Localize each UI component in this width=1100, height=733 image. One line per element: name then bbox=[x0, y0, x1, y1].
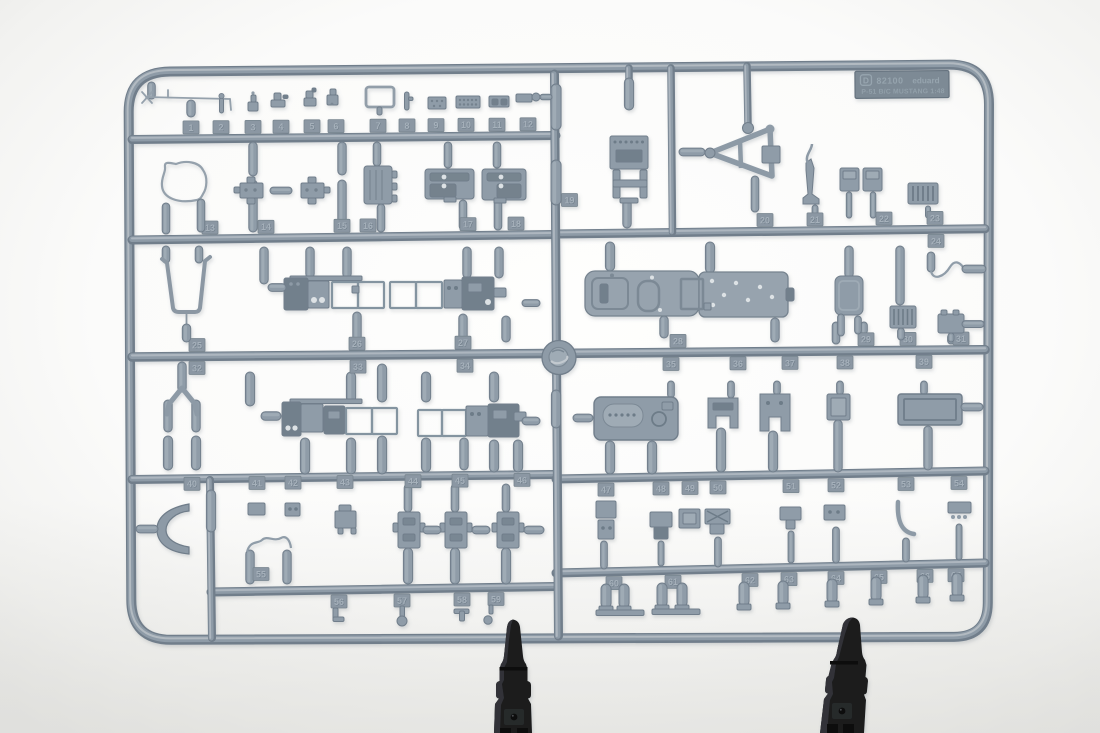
svg-text:13: 13 bbox=[205, 223, 215, 233]
svg-text:15: 15 bbox=[337, 221, 347, 231]
svg-text:39: 39 bbox=[919, 357, 929, 367]
svg-text:4: 4 bbox=[278, 122, 283, 132]
svg-text:48: 48 bbox=[656, 484, 666, 494]
svg-text:57: 57 bbox=[397, 596, 407, 606]
svg-text:31: 31 bbox=[956, 334, 966, 344]
svg-text:28: 28 bbox=[673, 336, 683, 346]
svg-text:14: 14 bbox=[261, 222, 271, 232]
svg-text:eduard: eduard bbox=[912, 76, 939, 85]
svg-text:18: 18 bbox=[511, 219, 521, 229]
svg-text:25: 25 bbox=[192, 340, 202, 350]
svg-text:12: 12 bbox=[523, 120, 533, 130]
svg-text:1: 1 bbox=[188, 123, 193, 133]
svg-text:19: 19 bbox=[564, 195, 574, 205]
svg-text:D: D bbox=[863, 75, 869, 85]
svg-text:82100: 82100 bbox=[876, 75, 903, 85]
svg-text:21: 21 bbox=[810, 215, 820, 225]
svg-text:50: 50 bbox=[713, 483, 723, 493]
svg-text:61: 61 bbox=[668, 577, 678, 587]
svg-text:42: 42 bbox=[288, 478, 298, 488]
svg-text:6: 6 bbox=[333, 122, 338, 132]
svg-text:27: 27 bbox=[458, 338, 468, 348]
svg-text:58: 58 bbox=[457, 595, 467, 605]
svg-text:46: 46 bbox=[517, 475, 527, 485]
svg-text:52: 52 bbox=[831, 481, 841, 491]
svg-text:35: 35 bbox=[666, 359, 676, 369]
svg-text:24: 24 bbox=[931, 236, 941, 246]
svg-text:29: 29 bbox=[861, 335, 871, 345]
svg-text:9: 9 bbox=[433, 121, 438, 131]
svg-text:34: 34 bbox=[460, 361, 470, 371]
svg-text:2: 2 bbox=[218, 123, 223, 133]
svg-text:59: 59 bbox=[491, 594, 501, 604]
svg-text:23: 23 bbox=[930, 213, 940, 223]
svg-text:47: 47 bbox=[601, 485, 611, 495]
svg-text:26: 26 bbox=[352, 339, 362, 349]
svg-text:17: 17 bbox=[463, 220, 473, 230]
svg-text:36: 36 bbox=[733, 359, 743, 369]
svg-text:41: 41 bbox=[252, 478, 262, 488]
svg-text:54: 54 bbox=[954, 478, 964, 488]
svg-text:55: 55 bbox=[256, 569, 266, 579]
svg-text:37: 37 bbox=[785, 358, 795, 368]
svg-text:10: 10 bbox=[461, 120, 471, 130]
svg-text:20: 20 bbox=[760, 215, 770, 225]
svg-text:5: 5 bbox=[309, 122, 314, 132]
svg-text:8: 8 bbox=[404, 121, 409, 131]
svg-text:40: 40 bbox=[187, 479, 197, 489]
svg-text:32: 32 bbox=[192, 363, 202, 373]
svg-text:11: 11 bbox=[492, 120, 502, 130]
svg-text:51: 51 bbox=[786, 482, 796, 492]
svg-text:16: 16 bbox=[363, 221, 373, 231]
svg-text:22: 22 bbox=[879, 214, 889, 224]
svg-text:56: 56 bbox=[334, 597, 344, 607]
svg-text:38: 38 bbox=[840, 358, 850, 368]
svg-text:43: 43 bbox=[340, 477, 350, 487]
svg-text:3: 3 bbox=[250, 122, 255, 132]
svg-text:53: 53 bbox=[901, 479, 911, 489]
svg-text:45: 45 bbox=[455, 476, 465, 486]
svg-text:44: 44 bbox=[408, 477, 418, 487]
svg-text:49: 49 bbox=[685, 483, 695, 493]
svg-text:7: 7 bbox=[375, 121, 380, 131]
svg-text:P-51 B/C MUSTANG 1:48: P-51 B/C MUSTANG 1:48 bbox=[861, 88, 944, 96]
svg-text:33: 33 bbox=[353, 362, 363, 372]
